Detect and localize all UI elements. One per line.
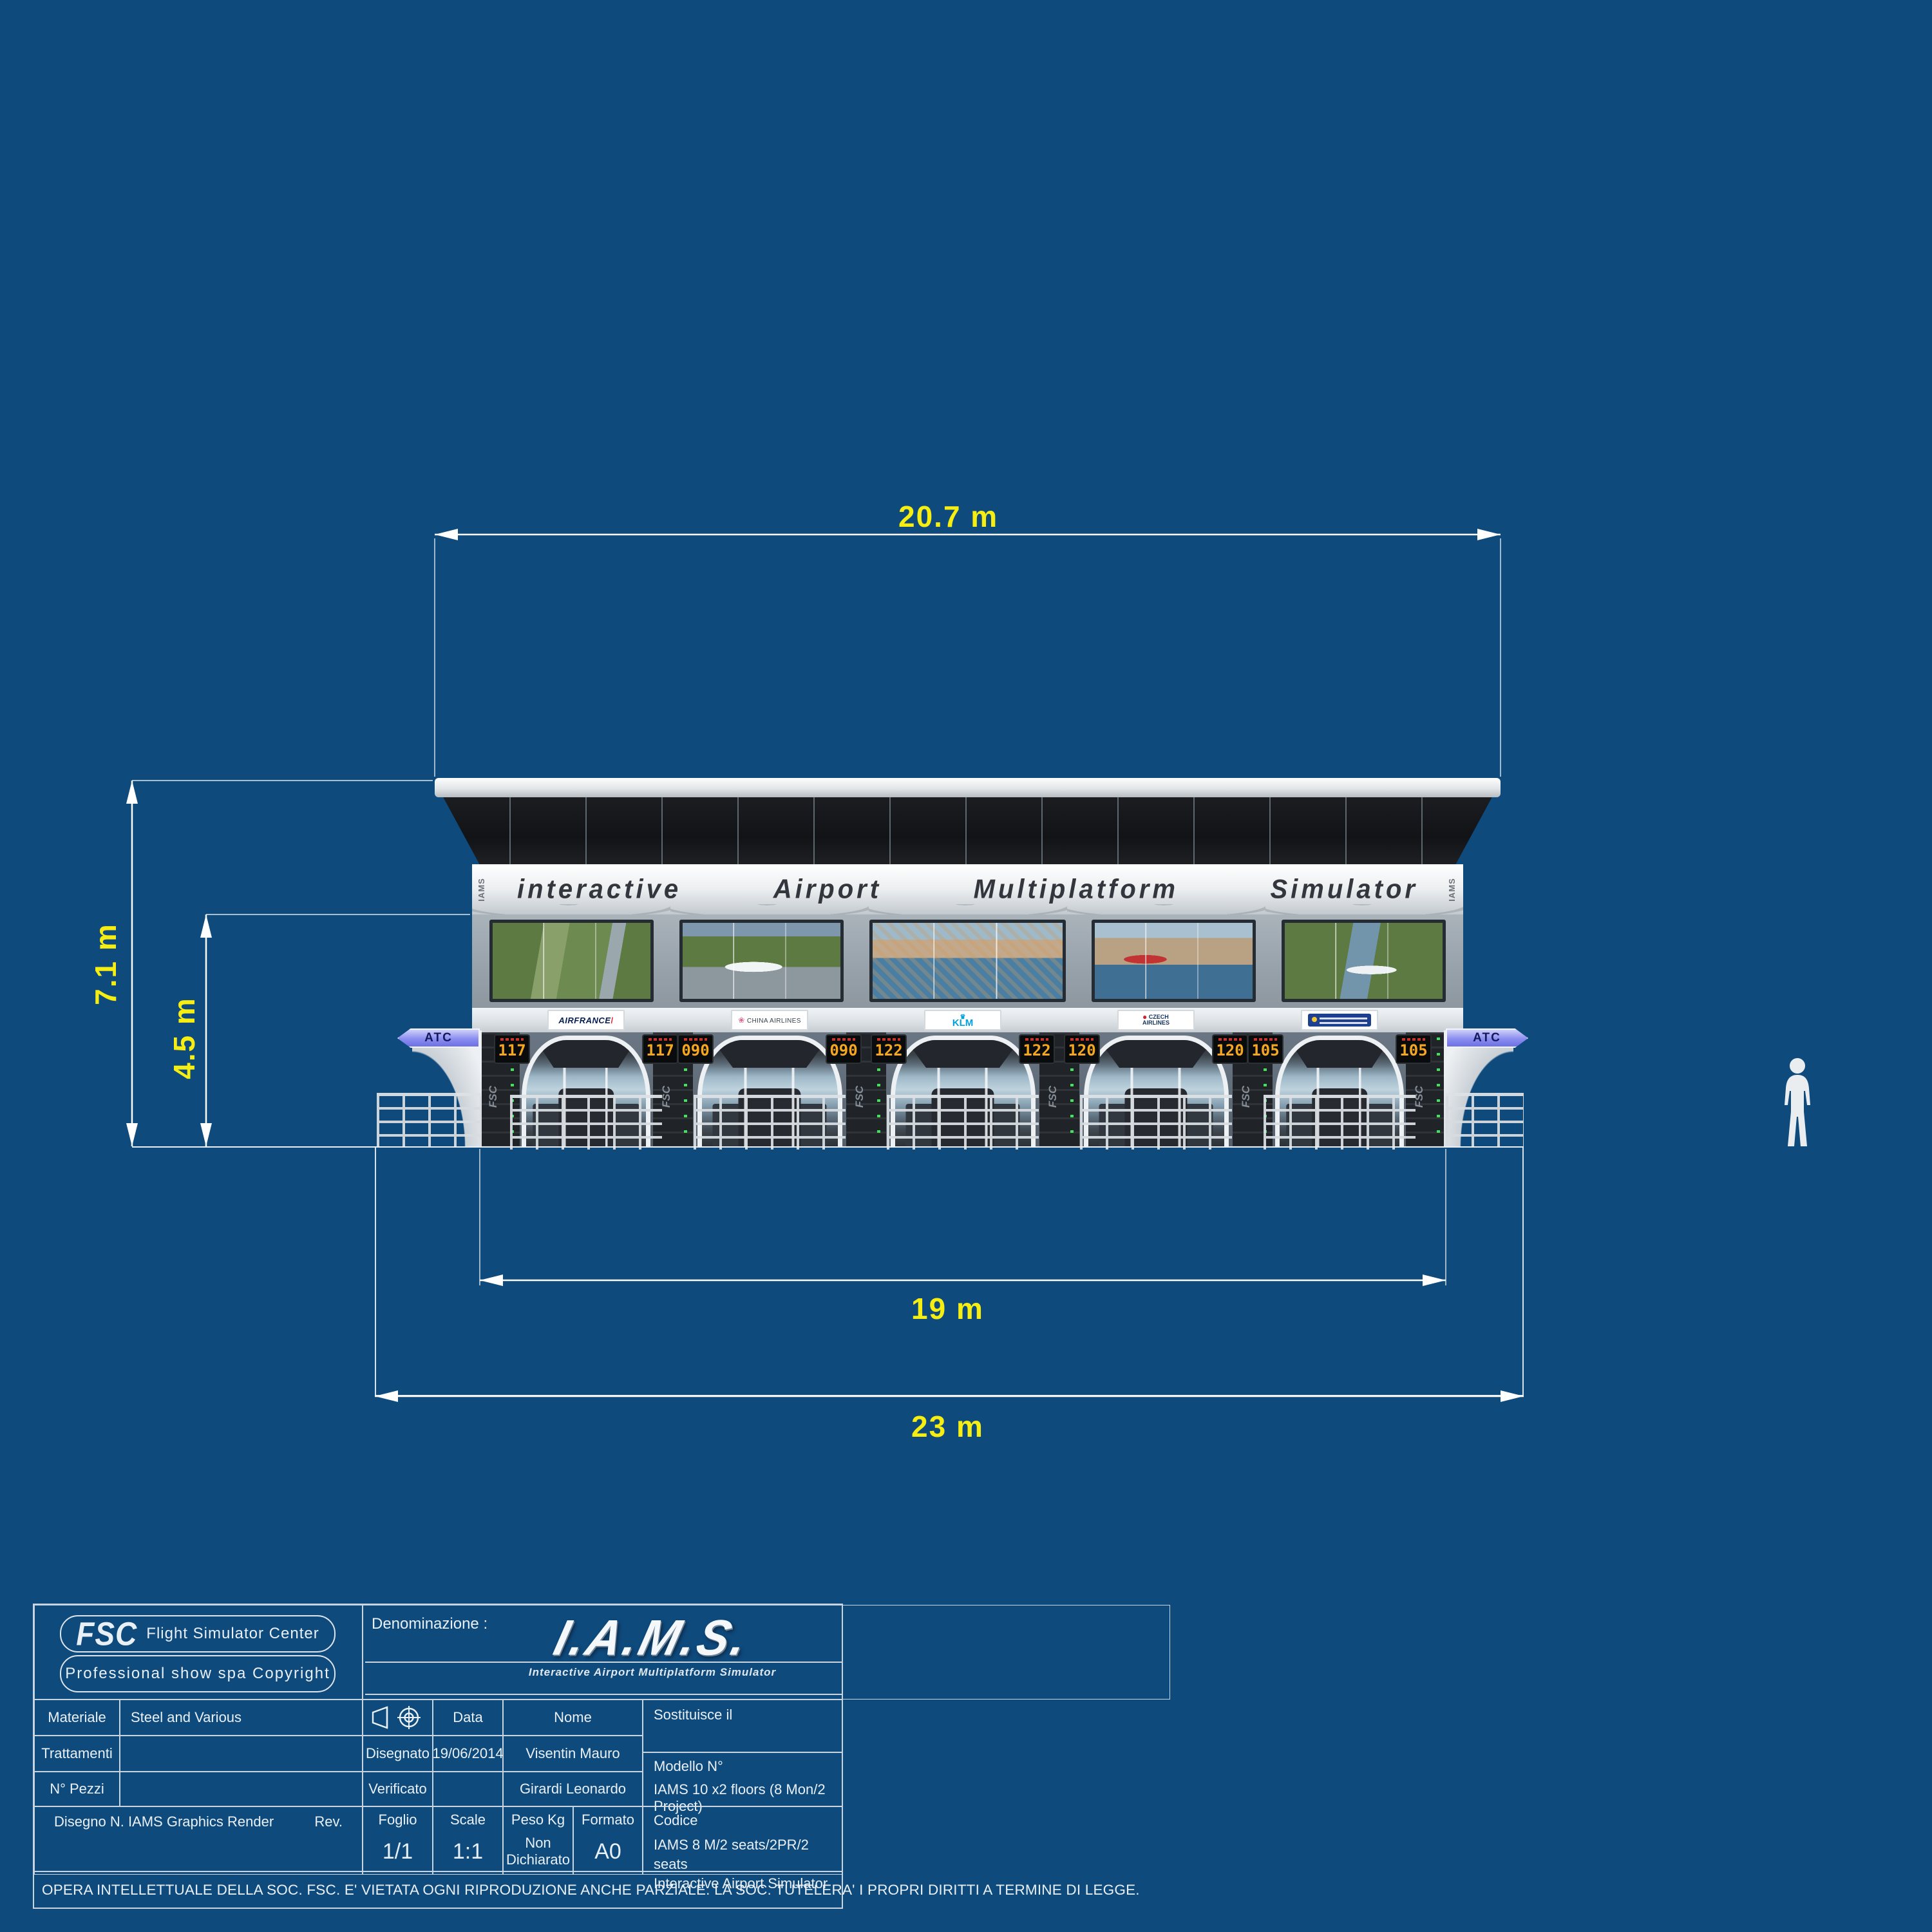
peso-cell: Peso Kg NonDichiarato [503,1806,573,1875]
pezzi-label: N° Pezzi [34,1772,120,1806]
verificato-nome: Girardi Leonardo [503,1772,643,1806]
codice-label: Codice [654,1812,842,1829]
dim-facade-height: 4.5 m [167,997,202,1079]
dim-platform-width: 23 m [911,1409,984,1444]
peso-value: NonDichiarato [504,1833,573,1870]
modello-label: Modello N° [654,1758,842,1775]
title-block: FSC Flight Simulator Center Professional… [33,1604,843,1909]
disegnato-label: Disegnato [363,1736,433,1772]
dim-roof-width: 20.7 m [898,499,998,534]
dim-total-height: 7.1 m [88,923,123,1005]
product-logo-subtitle: Interactive Airport Multiplatform Simula… [485,1666,820,1679]
scale-label: Scale [433,1807,502,1833]
disegno-label: Disegno N. IAMS Graphics Render [54,1814,274,1830]
rev-label: Rev. [314,1814,343,1830]
drawing-sheet: interactiveAirportMultiplatformSimulator… [0,0,1932,1932]
verificato-data [433,1772,503,1806]
materiale-value: Steel and Various [120,1700,363,1736]
fsc-logo-pill: FSC Flight Simulator Center [60,1615,336,1653]
projection-symbol-cell [363,1700,433,1736]
foglio-value: 1/1 [363,1833,432,1870]
fsc-tagline: Flight Simulator Center [146,1625,319,1643]
product-logo-text: I.A.M.S. [549,1609,756,1666]
data-label: Data [433,1700,503,1736]
scale-value: 1:1 [433,1833,502,1870]
legal-notice: OPERA INTELLETTUALE DELLA SOC. FSC. E' V… [34,1871,842,1908]
codice-cell: Codice IAMS 8 M/2 seats/2PR/2 seatsInter… [643,1806,843,1875]
formato-value: A0 [574,1833,642,1870]
foglio-cell: Foglio 1/1 [363,1806,433,1875]
trattamenti-label: Trattamenti [34,1736,120,1772]
product-logo: I.A.M.S. Interactive Airport Multiplatfo… [485,1610,820,1679]
disegnato-data: 19/06/2014 [433,1736,503,1772]
materiale-label: Materiale [34,1700,120,1736]
scale-cell: Scale 1:1 [433,1806,503,1875]
verificato-label: Verificato [363,1772,433,1806]
disegnato-nome: Visentin Mauro [503,1736,643,1772]
pezzi-value [120,1772,363,1806]
copyright-pill: Professional show spa Copyright [60,1655,336,1692]
denominazione-label: Denominazione : [372,1615,488,1633]
nome-label: Nome [503,1700,643,1736]
trattamenti-value [120,1736,363,1772]
denomination-rule-2 [365,1694,842,1695]
denomination-rule-1 [365,1662,842,1663]
peso-label: Peso Kg [504,1807,573,1833]
foglio-label: Foglio [363,1807,432,1833]
projection-symbol-icon [370,1705,426,1730]
modello-cell: Modello N° IAMS 10 x2 floors (8 Mon/2 Pr… [643,1752,843,1806]
disegno-cell: Disegno N. IAMS Graphics Render Rev. [34,1806,363,1875]
fsc-logo: FSC [76,1615,137,1653]
dim-body-width: 19 m [911,1291,984,1326]
sostituisce-label: Sostituisce il [643,1700,843,1752]
formato-label: Formato [574,1807,642,1833]
formato-cell: Formato A0 [573,1806,643,1875]
